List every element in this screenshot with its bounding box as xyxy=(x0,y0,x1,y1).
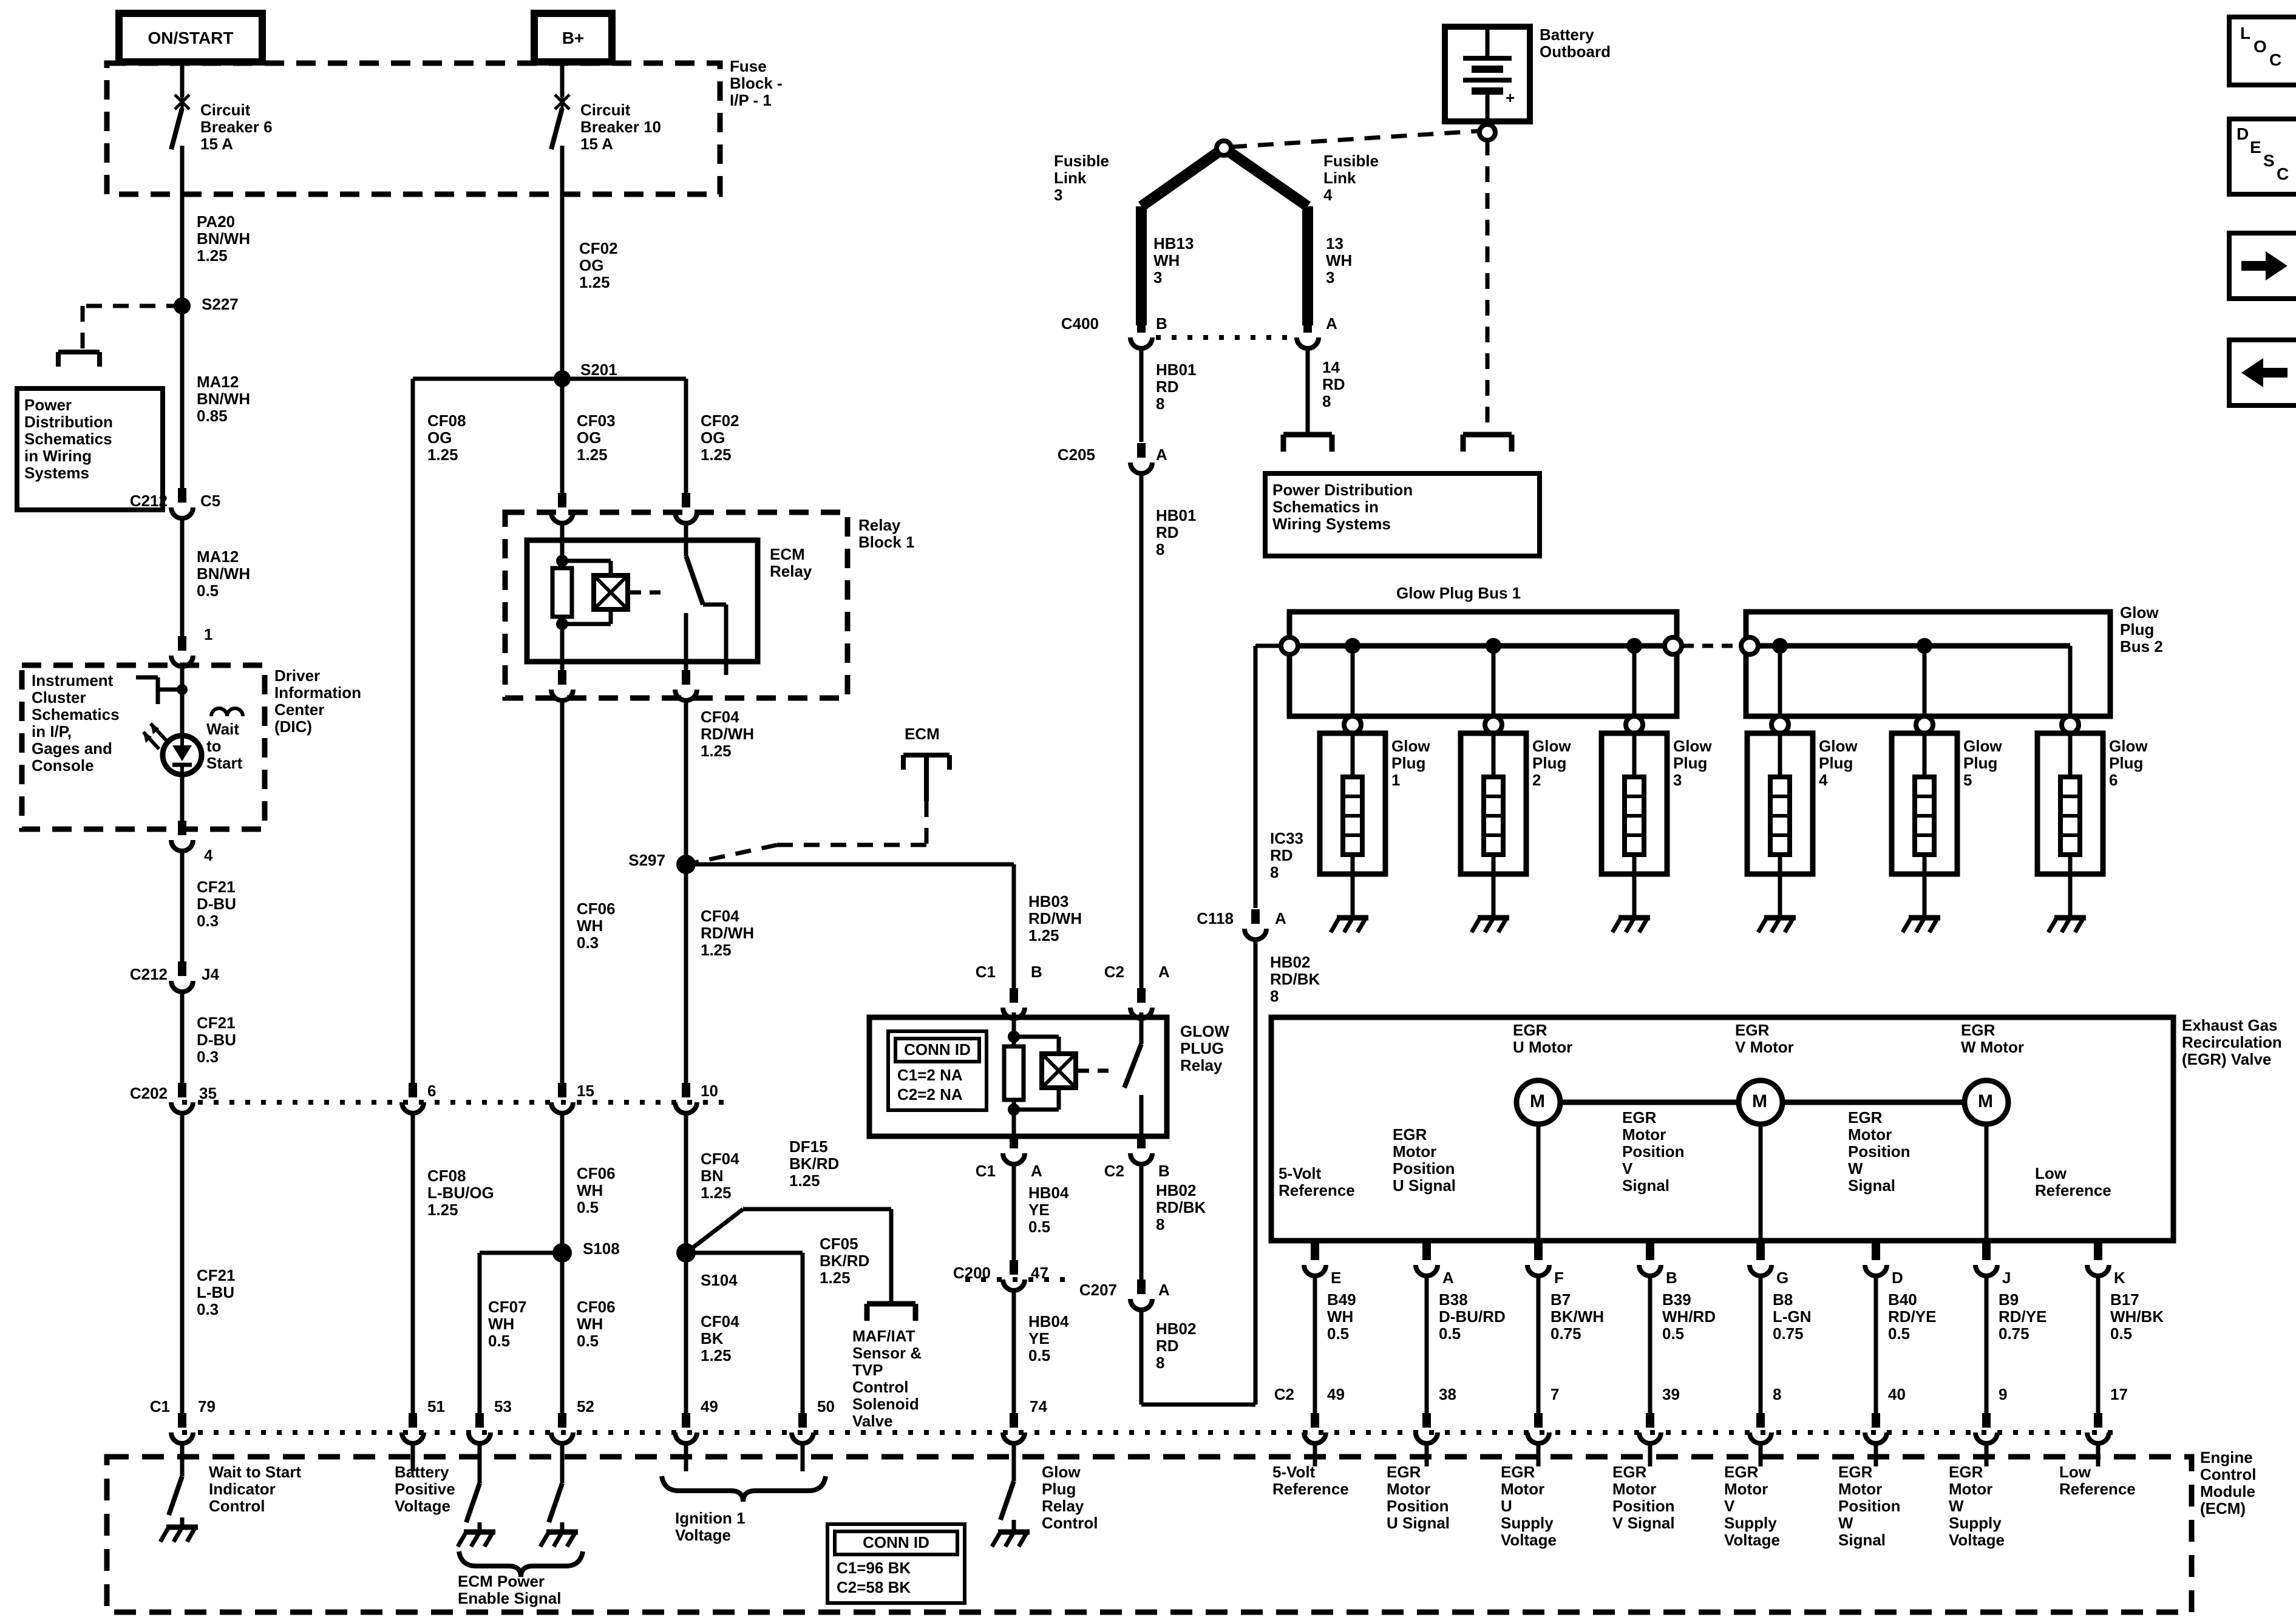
power-distribution-ref-box-2: Power Distribution Schematics in Wiring … xyxy=(1263,471,1542,558)
wire-label-cf08-lbuog: CF08 L-BU/OG 1.25 xyxy=(427,1168,494,1219)
egr-wire-label: B9 RD/YE 0.75 xyxy=(1999,1292,2046,1343)
ecm-pin-number: 17 xyxy=(2110,1386,2128,1403)
left-arrow-icon xyxy=(2232,342,2296,403)
egr-pos-u-label: EGR Motor Position U Signal xyxy=(1393,1127,1456,1195)
wait-to-start-label: Wait to Start xyxy=(206,721,242,772)
pin-number-1: 1 xyxy=(204,626,212,643)
glow-plug-bus-2-label: Glow Plug Bus 2 xyxy=(2120,605,2163,656)
conn-id-title: CONN ID xyxy=(833,1530,959,1556)
egr-valve-label: Exhaust Gas Recirculation (EGR) Valve xyxy=(2182,1017,2282,1068)
b-plus-terminal: B+ xyxy=(531,10,616,66)
pin-number-49: 49 xyxy=(701,1398,718,1415)
connector-label-c1-top: C1 xyxy=(976,964,996,981)
egr-w-motor-label: EGR W Motor xyxy=(1961,1022,2024,1056)
pin-number-10: 10 xyxy=(701,1083,718,1100)
pin-number-74: 74 xyxy=(1030,1398,1047,1415)
egr-5v-ref-label: 5-Volt Reference xyxy=(1279,1165,1355,1199)
dotted-connector-lines xyxy=(182,337,2113,1432)
maf-iat-label: MAF/IAT Sensor & TVP Control Solenoid Va… xyxy=(852,1328,922,1430)
splice-label-s227: S227 xyxy=(202,296,239,313)
b-plus-label: B+ xyxy=(562,28,585,47)
pin-label-b-bot: B xyxy=(1158,1163,1170,1180)
wire-label-cf04-a: CF04 RD/WH 1.25 xyxy=(701,709,754,760)
connector-label-c202: C202 xyxy=(130,1085,168,1102)
connector-label-c118: C118 xyxy=(1197,910,1234,927)
connector-label-c400: C400 xyxy=(1061,316,1099,333)
on-start-terminal: ON/START xyxy=(115,10,266,66)
battery-icon xyxy=(1463,27,1512,121)
connector-label-c1: C1 xyxy=(150,1398,170,1415)
wire-label-df15: DF15 BK/RD 1.25 xyxy=(789,1139,839,1190)
glow-plug-2-label: Glow Plug 2 xyxy=(1532,738,1571,789)
wait-to-start-control-label: Wait to Start Indicator Control xyxy=(209,1464,301,1515)
motor-m-label: M xyxy=(1752,1093,1767,1112)
pin-label-c5: C5 xyxy=(200,493,220,510)
connector-label-c212b: C212 xyxy=(130,966,168,983)
pin-label-a: A xyxy=(1326,316,1337,333)
egr-wire-label: B17 WH/BK 0.5 xyxy=(2110,1292,2164,1343)
connector-label-c205: C205 xyxy=(1058,447,1095,464)
glow-plug-3-label: Glow Plug 3 xyxy=(1673,738,1712,789)
wire-label-cf04-b: CF04 RD/WH 1.25 xyxy=(701,908,754,959)
pin-label-b: B xyxy=(1156,316,1167,333)
desc-letter: S xyxy=(2263,151,2275,170)
ecm-pin-number: 38 xyxy=(1439,1386,1456,1403)
pin-number-53: 53 xyxy=(494,1398,512,1415)
glow-plug-5-label: Glow Plug 5 xyxy=(1963,738,2002,789)
dic-label: Driver Information Center (DIC) xyxy=(274,668,361,736)
wire-label-cf08: CF08 OG 1.25 xyxy=(427,413,466,464)
pin-number-51: 51 xyxy=(427,1398,445,1415)
wire-label-cf21-c: CF21 L-BU 0.3 xyxy=(197,1267,236,1318)
instrument-callout-bracket xyxy=(136,677,177,704)
previous-page-button[interactable] xyxy=(2227,337,2296,408)
conn-id-values: C1=2 NA C2=2 NA xyxy=(894,1063,981,1105)
connector-label-c1-bot: C1 xyxy=(976,1163,996,1180)
ecm-pointer-bracket xyxy=(903,755,949,801)
wire-label-hb13: HB13 WH 3 xyxy=(1153,236,1194,286)
pin-number-52: 52 xyxy=(577,1398,594,1415)
pin-label-a-bot: A xyxy=(1031,1163,1042,1180)
wire-label-ic33: IC33 RD 8 xyxy=(1270,830,1303,881)
connector-label-c200: C200 xyxy=(953,1265,991,1282)
egr-pin-letter: B xyxy=(1666,1270,1677,1287)
wire-label-hb04-a: HB04 YE 0.5 xyxy=(1028,1185,1069,1236)
ecm-signal-label: EGR Motor Position W Signal xyxy=(1838,1464,1901,1549)
wire-label-cf06-05b: CF06 WH 0.5 xyxy=(577,1299,616,1350)
wire-label-hb02-c118: HB02 RD/BK 8 xyxy=(1270,954,1320,1005)
wire-label-ma12-05: MA12 BN/WH 0.5 xyxy=(197,549,250,600)
pin-label-b-top: B xyxy=(1031,964,1042,981)
egr-pin-letter: F xyxy=(1554,1270,1564,1287)
splice-label-s297: S297 xyxy=(628,852,665,869)
ecm-relay-label: ECM Relay xyxy=(770,546,812,580)
connector-label-c207: C207 xyxy=(1079,1282,1117,1299)
ecm-conn-id: CONN ID C1=96 BK C2=58 BK xyxy=(826,1522,966,1605)
ecm-relay-internals xyxy=(552,556,703,624)
wire-label-cf07: CF07 WH 0.5 xyxy=(488,1299,527,1350)
wire-label-cf02: CF02 OG 1.25 xyxy=(701,413,739,464)
glow-plug-4-label: Glow Plug 4 xyxy=(1819,738,1858,789)
glow-relay-internals xyxy=(1004,1012,1141,1136)
wire-label-cf04-bk: CF04 BK 1.25 xyxy=(701,1314,739,1364)
wire-label-cf02-top: CF02 OG 1.25 xyxy=(579,240,618,291)
egr-wire-label: B40 RD/YE 0.5 xyxy=(1888,1292,1936,1343)
wire-label-cf04-bn: CF04 BN 1.25 xyxy=(701,1151,739,1202)
pin-number-79: 79 xyxy=(198,1398,216,1415)
wire-label-hb01-a: HB01 RD 8 xyxy=(1156,362,1197,413)
desc-letter: D xyxy=(2237,124,2249,143)
ecm-pin-number: 9 xyxy=(1999,1386,2007,1403)
description-button[interactable]: D E S C xyxy=(2227,117,2296,197)
right-arrow-icon xyxy=(2232,236,2296,296)
wire-label-pa20: PA20 BN/WH 1.25 xyxy=(197,214,250,265)
on-start-label: ON/START xyxy=(148,28,233,47)
connector-label-c212: C212 xyxy=(130,493,168,510)
wire-label-ma12-085: MA12 BN/WH 0.85 xyxy=(197,374,250,425)
pin-label-a-top: A xyxy=(1158,964,1170,981)
fusible-link-4-label: Fusible Link 4 xyxy=(1323,153,1379,204)
egr-v-motor-label: EGR V Motor xyxy=(1735,1022,1794,1056)
ecm-signal-label: EGR Motor W Supply Voltage xyxy=(1949,1464,2005,1549)
wire-label-hb04-b: HB04 YE 0.5 xyxy=(1028,1314,1069,1364)
loc-letter: L xyxy=(2240,23,2250,42)
splice-label-s201: S201 xyxy=(580,362,617,379)
battery-positive-label: Battery Positive Voltage xyxy=(395,1464,455,1515)
loc-letter: O xyxy=(2254,36,2267,56)
egr-pos-w-label: EGR Motor Position W Signal xyxy=(1848,1110,1911,1195)
egr-pos-v-label: EGR Motor Position V Signal xyxy=(1622,1110,1685,1195)
pin-label-c207-a: A xyxy=(1158,1282,1170,1299)
glow-relay-conn-id: CONN ID C1=2 NA C2=2 NA xyxy=(886,1029,988,1112)
ecm-signal-label: EGR Motor U Supply Voltage xyxy=(1501,1464,1557,1549)
glow-plug-relay-control-label: Glow Plug Relay Control xyxy=(1042,1464,1098,1532)
wire-label-14rd: 14 RD 8 xyxy=(1322,359,1345,410)
connector-label-c2: C2 xyxy=(1274,1386,1294,1403)
schematic-lines xyxy=(0,0,2296,1617)
splice-label-s104: S104 xyxy=(701,1272,738,1289)
pin-number-15: 15 xyxy=(577,1083,594,1100)
wire-label-hb02-a: HB02 RD/BK 8 xyxy=(1156,1182,1206,1233)
fuse-block-label: Fuse Block - I/P - 1 xyxy=(730,58,783,109)
motor-m-label: M xyxy=(1530,1093,1545,1112)
egr-wire-label: B39 WH/RD 0.5 xyxy=(1662,1292,1716,1343)
pin-label-j4: J4 xyxy=(202,966,219,983)
ecm-power-enable-label: ECM Power Enable Signal xyxy=(458,1573,562,1607)
glow-plug-6-label: Glow Plug 6 xyxy=(2109,738,2148,789)
egr-wire-label: B8 L-GN 0.75 xyxy=(1773,1292,1812,1343)
ecm-signal-label: EGR Motor Position U Signal xyxy=(1387,1464,1450,1532)
instrument-cluster-label: Instrument Cluster Schematics in I/P, Ga… xyxy=(32,673,120,775)
wire-label-hb03: HB03 RD/WH 1.25 xyxy=(1028,893,1082,944)
egr-pin-letter: A xyxy=(1442,1270,1454,1287)
egr-pin-letter: J xyxy=(2002,1270,2011,1287)
ecm-signal-label: EGR Motor V Supply Voltage xyxy=(1724,1464,1780,1549)
egr-pin-letter: K xyxy=(2114,1270,2125,1287)
loc-letter: C xyxy=(2269,50,2281,69)
wire-label-cf06-05a: CF06 WH 0.5 xyxy=(577,1165,616,1216)
egr-low-ref-label: Low Reference xyxy=(2035,1165,2111,1199)
pin-number-6: 6 xyxy=(427,1083,436,1100)
egr-u-motor-label: EGR U Motor xyxy=(1513,1022,1572,1056)
wire-label-cf21-a: CF21 D-BU 0.3 xyxy=(197,879,236,930)
next-page-button[interactable] xyxy=(2227,231,2296,301)
conn-id-title: CONN ID xyxy=(894,1037,981,1063)
ecm-pin-number: 39 xyxy=(1662,1386,1680,1403)
wire-label-hb01-b: HB01 RD 8 xyxy=(1156,507,1197,558)
ecm-signal-label: EGR Motor Position V Signal xyxy=(1612,1464,1675,1532)
ecm-pin-number: 8 xyxy=(1773,1386,1781,1403)
fusible-link-3-label: Fusible Link 3 xyxy=(1054,153,1109,204)
glow-plug-1-label: Glow Plug 1 xyxy=(1391,738,1430,789)
wire-label-cf06-03: CF06 WH 0.3 xyxy=(577,901,616,952)
wire-label-cf03: CF03 OG 1.25 xyxy=(577,413,616,464)
ecm-signal-label: Low Reference xyxy=(2059,1464,2136,1498)
circuit-breaker-10-label: Circuit Breaker 10 15 A xyxy=(580,102,661,153)
pin-number-47: 47 xyxy=(1031,1265,1048,1282)
glow-plug-bus-1-label: Glow Plug Bus 1 xyxy=(1396,585,1521,602)
ecm-pointer-label: ECM xyxy=(905,726,940,743)
pin-label-c205-a: A xyxy=(1156,447,1167,464)
egr-pin-letter: E xyxy=(1331,1270,1341,1287)
egr-pin-letter: G xyxy=(1776,1270,1788,1287)
circuit-breaker-6-label: Circuit Breaker 6 15 A xyxy=(200,102,273,153)
connector-label-c2-top: C2 xyxy=(1104,964,1124,981)
connector-label-c2-bot: C2 xyxy=(1104,1163,1124,1180)
wiring-diagram-canvas: ON/START B+ Power Distribution Schematic… xyxy=(0,0,2296,1617)
splice-label-s108: S108 xyxy=(583,1241,620,1258)
motor-m-label: M xyxy=(1978,1093,1993,1112)
engine-control-module-label: Engine Control Module (ECM) xyxy=(2200,1449,2256,1517)
battery-plus-label: + xyxy=(1506,90,1515,107)
ecm-pin-number: 40 xyxy=(1888,1386,1906,1403)
component-boxes xyxy=(527,27,2173,1241)
wire-label-13: 13 WH 3 xyxy=(1326,236,1352,286)
conn-id-values: C1=96 BK C2=58 BK xyxy=(833,1556,959,1598)
ecm-pin-number: 49 xyxy=(1327,1386,1345,1403)
locate-button[interactable]: L O C xyxy=(2227,15,2296,87)
desc-letter: C xyxy=(2277,164,2289,183)
wire-label-cf21-b: CF21 D-BU 0.3 xyxy=(197,1015,236,1066)
ignition-1-voltage-label: Ignition 1 Voltage xyxy=(675,1510,746,1544)
pin-number-35: 35 xyxy=(199,1085,217,1102)
pin-number-50: 50 xyxy=(817,1398,835,1415)
egr-pin-stubs xyxy=(1315,1241,2098,1260)
wire-label-cf05: CF05 BK/RD 1.25 xyxy=(820,1236,869,1287)
egr-wire-label: B7 BK/WH 0.75 xyxy=(1550,1292,1604,1343)
pin-number-4: 4 xyxy=(204,847,212,864)
glow-plug-relay-label: GLOW PLUG Relay xyxy=(1180,1023,1229,1074)
wire-label-hb02-b: HB02 RD 8 xyxy=(1156,1321,1197,1372)
egr-wire-label: B49 WH 0.5 xyxy=(1327,1292,1356,1343)
braces xyxy=(459,1476,826,1577)
ecm-pin-number: 7 xyxy=(1550,1386,1559,1403)
relay-block-label: Relay Block 1 xyxy=(858,517,915,551)
desc-letter: E xyxy=(2250,137,2261,157)
pin-label-c118-a: A xyxy=(1275,910,1286,927)
battery-outboard-label: Battery Outboard xyxy=(1540,27,1611,61)
egr-wire-label: B38 D-BU/RD 0.5 xyxy=(1439,1292,1506,1343)
ecm-signal-label: 5-Volt Reference xyxy=(1272,1464,1349,1498)
wiring-diagram-page: ON/START B+ Power Distribution Schematic… xyxy=(0,0,2296,1617)
egr-pin-letter: D xyxy=(1892,1270,1903,1287)
